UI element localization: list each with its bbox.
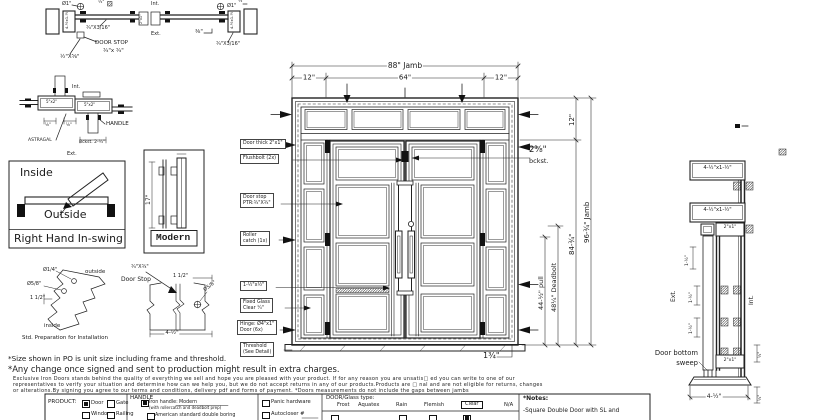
prep-outside-label: outside — [85, 270, 105, 276]
ts-bar-right: ¾"X3/16" — [216, 42, 240, 47]
rs-jamb-top: 4-½"x1-½" — [692, 166, 743, 171]
note-change: *Any change once signed and sent to prod… — [8, 365, 340, 374]
mp-tube2: 5"x2" — [84, 103, 95, 107]
checkbox-iron-handle[interactable] — [141, 400, 149, 408]
elevation-drawing — [285, 98, 525, 351]
rs-sweep-label-1: Door bottom — [640, 350, 698, 357]
prep-offset-dim: 1 1/2" — [30, 296, 45, 301]
checkbox-glass-row2-c[interactable] — [429, 415, 437, 420]
mp-ext-label: Ext. — [67, 152, 77, 157]
note-fine-3: or alterations.By signing you agree to o… — [13, 389, 469, 394]
checkbox-window[interactable] — [82, 412, 90, 420]
dim-deadbolt-height: 48¼" Deadbolt — [551, 263, 558, 312]
form-panic-hardware: Panic hardware — [271, 400, 311, 405]
rs-dim-bottom: 4-½" — [706, 394, 723, 400]
rs-dim-r1: ½" — [759, 352, 764, 358]
ts-dia-right: Ø1" — [227, 4, 236, 9]
mp-dim2: ⅛" — [66, 123, 72, 127]
stop-size: ¾"X¾" — [131, 265, 149, 270]
checkbox-autocloser[interactable] — [262, 412, 270, 420]
form-notes-line: -Square Double Door with SL and — [523, 408, 619, 414]
rs-jamb-mid: 4-½"x1-½" — [692, 208, 743, 213]
ts-jamb-left: 4-½x1-½ — [65, 12, 69, 29]
mp-astragal-label: ASTRAGAL — [28, 139, 52, 144]
ts-half-right: ½" — [238, 0, 244, 5]
prep-dia-large: Ø5/8" — [27, 282, 41, 287]
form-opt-gate: Gate — [116, 401, 128, 406]
checkbox-american-boring[interactable] — [147, 413, 155, 420]
handle-style-name: Modern — [156, 233, 190, 243]
rs-ext-label: Ext. — [671, 290, 677, 302]
checkbox-panic-hardware[interactable] — [262, 400, 270, 408]
ts-jamb-right: 4-½x1-½ — [230, 12, 234, 29]
mp-dim1: ⅛" — [45, 123, 51, 127]
ts-tube: 2"x1" — [140, 14, 144, 24]
ts-ext-label: Ext. — [151, 32, 161, 37]
swing-outside-label: Outside — [44, 209, 86, 221]
label-hinge: Hinge: Ø4"x1" Door (6x) — [237, 320, 277, 335]
form-glass-rain[interactable]: Rain — [396, 403, 407, 408]
ts-dia-left: Ø1" — [62, 2, 71, 7]
handle-height-dim: 17" — [146, 195, 152, 205]
prep-inside-label: inside — [44, 324, 60, 330]
label-door-thick: Door thick 2"x1" — [240, 139, 286, 149]
form-autocloser: Autocloser # — [271, 412, 305, 417]
swing-inside-label: Inside — [20, 167, 53, 179]
dim-door-height: 84-¾" — [569, 234, 576, 255]
swing-title: Right Hand In-swing — [14, 233, 123, 244]
form-glass-na[interactable]: N/A — [504, 403, 513, 408]
stop-width-dim: 4-½" — [164, 331, 179, 337]
dim-left: 12" — [302, 74, 316, 81]
checkbox-gate[interactable] — [107, 400, 115, 408]
mp-backset: Bckst. 2-¾" — [79, 141, 105, 146]
mp-handle-label: HANDLE — [106, 122, 129, 128]
stop-title: Door Stop — [121, 277, 151, 283]
note-size: *Size shown in PO is unit size including… — [8, 355, 226, 363]
prep-caption: Std. Preparation for Installation — [22, 336, 108, 342]
rs-tube-top: 2"x1" — [717, 226, 743, 231]
checkbox-glass-row2-a[interactable] — [331, 415, 339, 420]
checkbox-railing[interactable] — [107, 412, 115, 420]
form-american-boring: American standard double boring — [155, 413, 235, 418]
dim-overall: 88" Jamb — [387, 62, 423, 70]
rs-dim-b: 1-½" — [690, 292, 695, 303]
prep-dia-small: Ø1/4" — [43, 268, 57, 273]
form-iron-handle-sub: (with rollercatch and deadbolt prep) — [149, 406, 221, 410]
label-flushbolt: Flushbolt (2x) — [240, 154, 279, 164]
label-drip: 1-½"x½" — [240, 281, 267, 291]
dim-transom: 12" — [569, 114, 576, 126]
rs-dim-a: 1-½" — [686, 255, 691, 266]
elevation-dimensions — [271, 62, 596, 357]
ts-bar-left: ¾"X3/16" — [86, 26, 110, 31]
checkbox-glass-row2-b[interactable] — [399, 415, 407, 420]
ts-three-eighths: ⅜" — [195, 30, 203, 36]
dim-center: 64" — [398, 74, 412, 81]
ts-astragal-size: ½"X⅝" — [60, 55, 80, 61]
dim-backset-frac: 2⅜" — [529, 146, 547, 155]
form-glass-clear-selected[interactable]: Clear — [461, 401, 483, 409]
rs-dim-r2: ½" — [759, 395, 764, 401]
dim-jamb-height: 96-¾" Jamb — [584, 202, 591, 243]
ts-half-top: ½" — [98, 1, 104, 6]
dim-backset-word: bckst. — [529, 158, 548, 165]
door-stop-detail-drawing — [146, 272, 212, 337]
mp-tube1: 5"x2" — [46, 100, 57, 104]
mp-int-label: Int. — [72, 85, 80, 90]
door-shop-drawing: Ø1" ½" 4-½x1-½ ¾"X3/16" DOOR STOP ¾"x ¾"… — [0, 0, 826, 420]
rs-tube-bottom: 2"x1" — [717, 359, 743, 364]
ts-door-stop: DOOR STOP — [95, 41, 128, 47]
form-glass-frost[interactable]: Frost — [337, 403, 350, 408]
form-glass-label: DOOR/Glass type: — [326, 396, 374, 402]
form-notes-label: *Notes: — [523, 396, 548, 402]
rs-dim-c: 1-½" — [690, 323, 695, 334]
checkbox-glass-row2-d[interactable] — [463, 415, 471, 420]
rs-sweep-label-2: sweep — [640, 360, 698, 367]
checkbox-door[interactable] — [82, 400, 90, 408]
ts-door-stop-size: ¾"x ¾" — [103, 49, 124, 55]
dim-threshold-height: 1¾" — [483, 352, 500, 360]
form-opt-door: Door — [91, 401, 103, 406]
rs-int-label: Int. — [749, 295, 755, 305]
dim-right: 12" — [494, 74, 508, 81]
form-product-label: PRODUCT: — [48, 400, 77, 406]
label-roller-catch: Roller catch (1x) — [240, 231, 270, 246]
dim-pull-height: 44-½" pull — [538, 276, 545, 310]
stop-offset-dim: 1 1/2" — [173, 274, 188, 279]
form-opt-railing: Railing — [116, 412, 134, 417]
label-door-stop: Door stop PTR:¾"X¾" — [240, 193, 274, 208]
ts-int-label: Int. — [151, 2, 159, 7]
form-glass-flemish[interactable]: Flemish — [424, 403, 444, 408]
form-glass-aquatex[interactable]: Aquatex — [358, 403, 379, 408]
label-threshold: Threshold (See Detail) — [240, 342, 274, 357]
std-prep-drawing — [44, 270, 105, 330]
label-fixed-glass: Fixed Glass Clear ¼" — [240, 298, 273, 313]
